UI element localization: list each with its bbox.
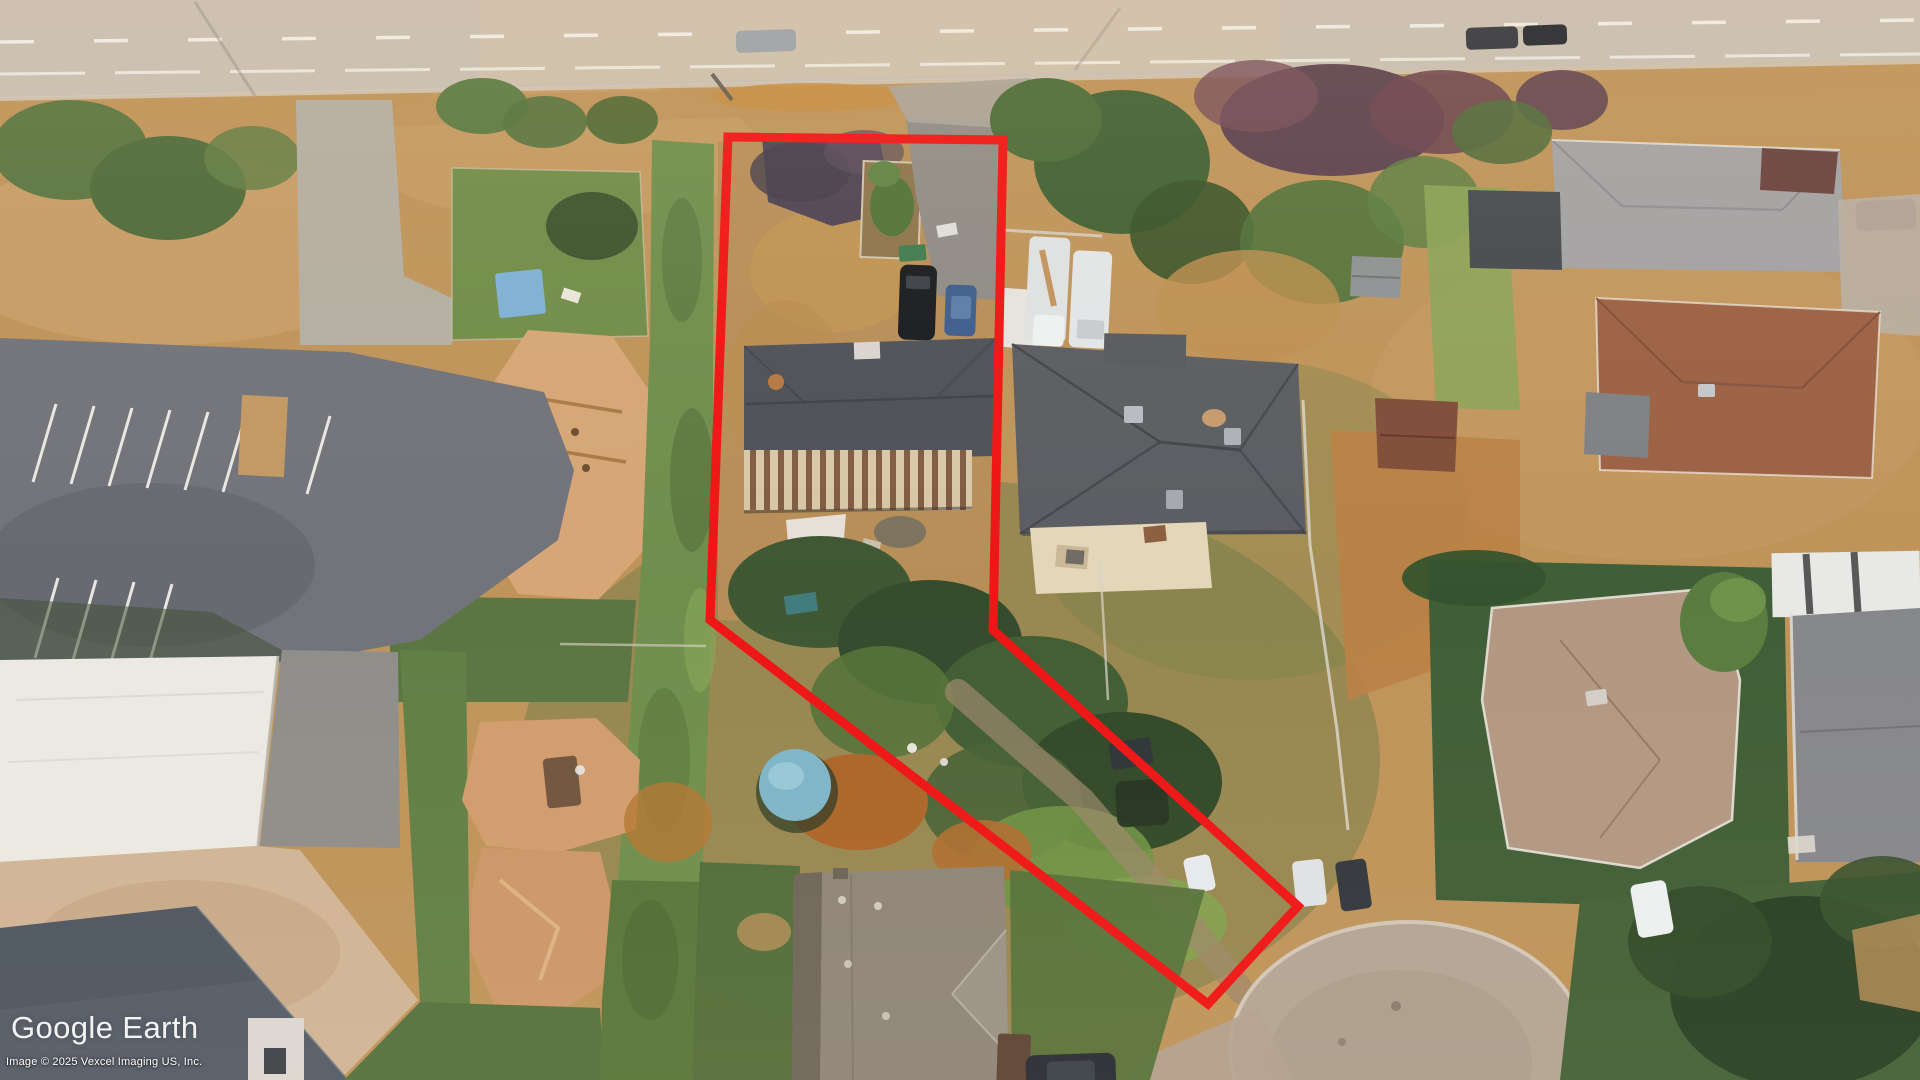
debris-1: [907, 743, 917, 753]
garage-dark-roof: [1468, 190, 1562, 270]
climber-canopy: [575, 765, 585, 775]
utility-truck-cab: [1032, 314, 1065, 347]
google-earth-logo: Google Earth: [11, 1010, 198, 1046]
metal-roof-white: [1771, 551, 1920, 618]
awning-striped: [744, 450, 972, 510]
debris-2: [940, 758, 948, 766]
culdesac-speck-2: [1338, 1038, 1346, 1046]
metal-roof-stripe-1: [1806, 554, 1810, 614]
bush-top-center-2: [503, 96, 587, 148]
basketball-hoop: [768, 374, 784, 390]
drive-center-left: [260, 650, 400, 848]
bighouse-upper-wing: [1104, 333, 1187, 366]
van-windshield: [1077, 319, 1105, 339]
house-skylight: [854, 342, 881, 360]
hedge-texture-2: [670, 408, 714, 552]
grayhouse-darkred-wing: [1760, 148, 1838, 194]
patio-furniture-dark: [1065, 549, 1084, 565]
dry-strip-right-edge: [1852, 914, 1920, 1012]
bchouse-shadow-left: [792, 872, 822, 1080]
bchouse-chimney: [833, 868, 848, 879]
suv-windshield: [906, 276, 930, 290]
car-gray-road: [736, 29, 797, 53]
swing-post-1: [571, 428, 579, 436]
google-earth-viewport: Google Earth Image © 2025 Vexcel Imaging…: [0, 0, 1920, 1080]
bchouse-vent-3: [844, 960, 852, 968]
shed-brown-bottomcenter: [996, 1033, 1031, 1080]
lawn-bottomcenter-left: [692, 862, 800, 1080]
bchouse-vent-2: [874, 902, 882, 910]
car-blue-roof: [951, 296, 972, 320]
playground-lawn: [452, 168, 648, 340]
bush-row-left-3: [204, 126, 300, 190]
bighouse-skylight-1: [1124, 406, 1143, 423]
brownhouse-skylight: [1698, 384, 1715, 397]
hedge-se-texture: [622, 900, 678, 1020]
brownhouse-gray-wing: [1584, 392, 1650, 458]
hedge-row-midright: [1402, 550, 1546, 606]
bighouse-chimney: [1202, 409, 1226, 427]
bush-top-center-3: [586, 96, 658, 144]
bighouse-skylight-3: [1166, 490, 1183, 509]
tree-midright-light: [1710, 578, 1766, 622]
dirt-spot-bottomcenter: [737, 913, 791, 951]
imagery-attribution: Image © 2025 Vexcel Imaging US, Inc.: [6, 1056, 202, 1068]
culdesac-speck-1: [1391, 1001, 1401, 1011]
suv-black: [898, 264, 938, 340]
compost-bin: [898, 244, 926, 262]
bchouse-vent-1: [838, 896, 846, 904]
umbrella-highlight: [768, 762, 804, 790]
warehouse-roof: [0, 656, 278, 862]
backyard-tree-6: [810, 646, 954, 758]
bchouse-vent-4: [882, 1012, 890, 1020]
car-dark-road-1: [1466, 26, 1519, 50]
patio-table-brown: [1143, 525, 1167, 543]
bighouse-skylight-2: [1224, 428, 1241, 445]
shade-tree-dark: [546, 192, 638, 260]
car-dark-road-2: [1523, 24, 1568, 46]
metal-roof-stripe-2: [1854, 552, 1858, 612]
car-dark-bc-roof: [1046, 1060, 1095, 1080]
pad-white-bottomright: [1787, 835, 1815, 854]
green-tree-right: [1452, 100, 1552, 164]
swing-post-2: [582, 464, 590, 472]
maroon-tree-3: [1194, 60, 1318, 132]
garden-plants-2: [868, 161, 900, 187]
hedge-texture-1: [662, 198, 702, 322]
rightwing-roof: [1790, 608, 1920, 862]
parking-island: [238, 395, 288, 477]
climber-structure: [542, 755, 581, 808]
aerial-scene: [0, 0, 1920, 1080]
white-structure-door: [264, 1048, 286, 1074]
yard-stuff-1: [874, 516, 926, 548]
tarp-blue: [495, 269, 546, 319]
midright-skylight: [1585, 689, 1608, 707]
dirt-patch-orange-3: [624, 782, 712, 862]
sand-area-low: [470, 848, 612, 1012]
orange-mound-roadside: [710, 83, 910, 111]
